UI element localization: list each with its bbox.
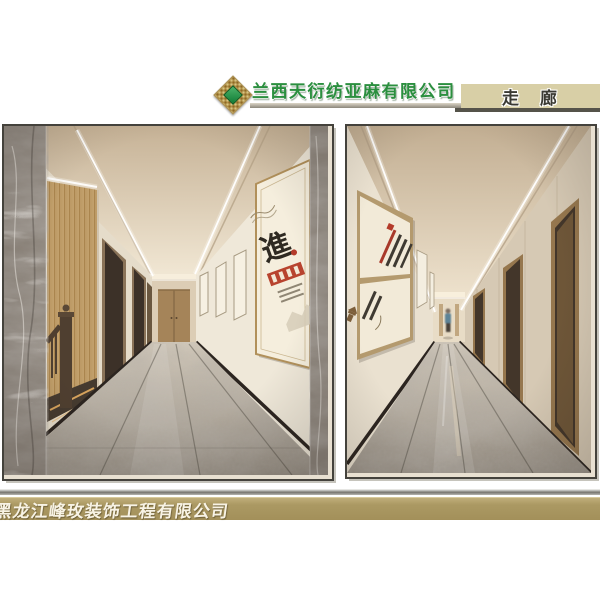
corridor-render-right bbox=[347, 126, 591, 473]
section-tab-shadow bbox=[455, 108, 600, 112]
render-right-figure bbox=[345, 124, 597, 479]
section-tab: 走 廊 bbox=[461, 84, 600, 108]
footer-company-name: 黑龙江峰玫装饰工程有限公司 bbox=[0, 497, 231, 522]
vignette-overlay bbox=[347, 126, 591, 473]
footer-bar: 黑龙江峰玫装饰工程有限公司 bbox=[0, 497, 600, 520]
company-title: 兰西天衍纺亚麻有限公司 bbox=[252, 80, 467, 104]
company-logo bbox=[214, 76, 250, 112]
footer-divider bbox=[0, 489, 600, 495]
corridor-render-left: 進 bbox=[4, 126, 328, 475]
render-left-figure: 進 bbox=[2, 124, 334, 481]
title-underline bbox=[250, 103, 462, 108]
vignette-overlay bbox=[4, 126, 328, 475]
section-tab-label: 走 廊 bbox=[502, 84, 559, 109]
presentation-board: 兰西天衍纺亚麻有限公司 走 廊 bbox=[0, 0, 600, 600]
